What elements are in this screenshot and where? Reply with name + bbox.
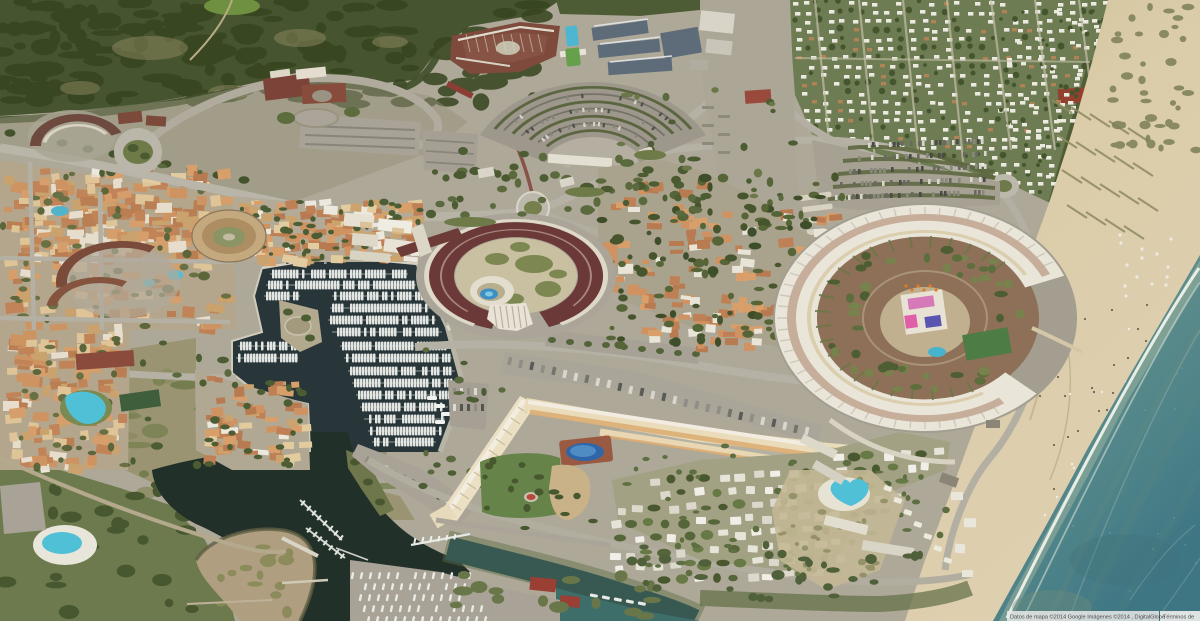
svg-text:Datos de mapa ©2014 Google Imá: Datos de mapa ©2014 Google Imágenes ©201… [1010, 614, 1165, 621]
svg-text:Términos de: Términos de [1163, 615, 1194, 621]
